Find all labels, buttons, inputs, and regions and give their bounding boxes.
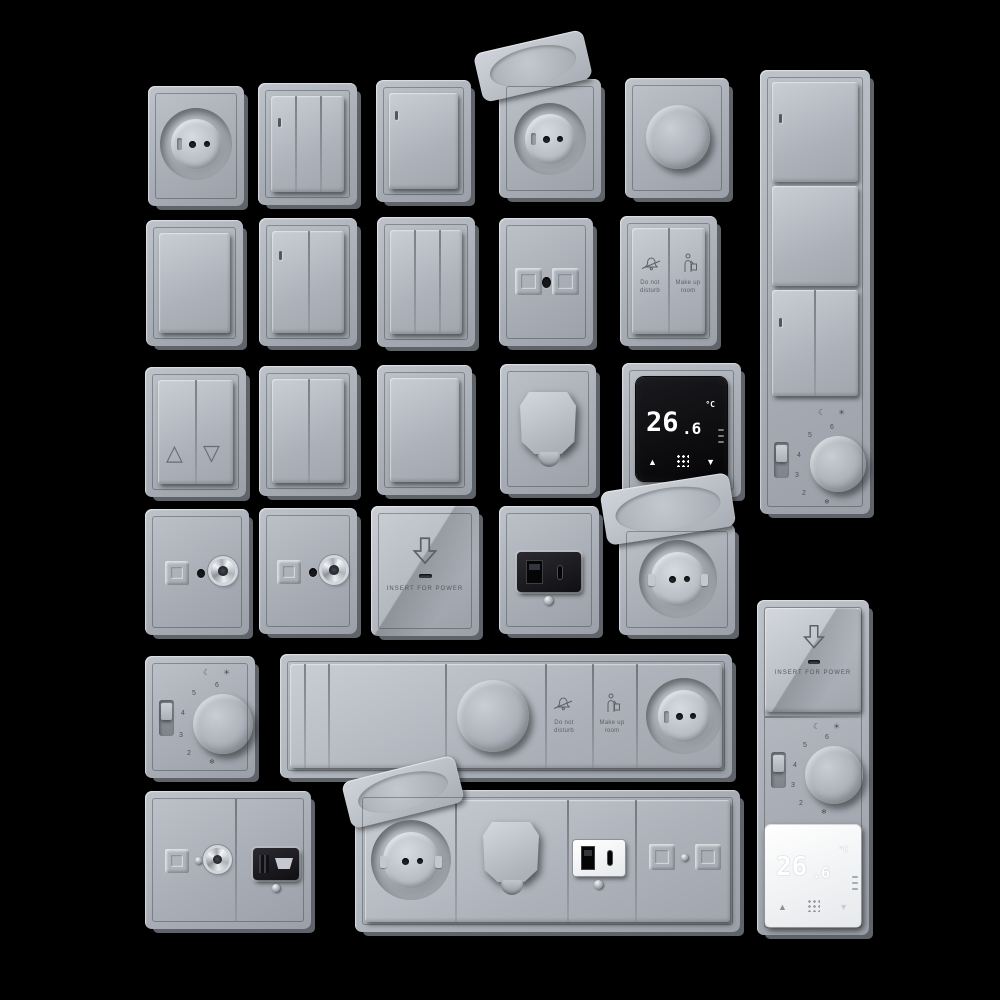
vent-slots: [259, 855, 269, 873]
insert-for-power-label: INSERT FOR POWER: [769, 670, 857, 676]
dial-number: 4: [793, 762, 797, 769]
thermostat-dial[interactable]: [810, 436, 866, 492]
hotel-service-plate: Do not disturb Make up room: [620, 216, 717, 346]
socket-pin-hole: [204, 141, 210, 147]
shutter-switch-plate: △ ▽: [145, 367, 246, 497]
dial-number: 5: [808, 432, 812, 439]
key-card-switch-plate[interactable]: INSERT FOR POWER: [371, 506, 479, 636]
side-indicators: [718, 429, 724, 443]
strip-rocker-3[interactable]: [772, 290, 858, 396]
coax-connector[interactable]: [206, 848, 229, 871]
do-not-disturb-icon: [552, 694, 574, 712]
socket-face: [651, 552, 705, 606]
strip-divider: [328, 664, 330, 768]
module-emboss[interactable]: [649, 844, 675, 870]
shutter-down-icon: ▽: [203, 440, 220, 466]
dial-number: 4: [181, 710, 185, 717]
module-emboss[interactable]: [695, 844, 721, 870]
thermostat-screen[interactable]: °C 26 .6 ▲ ▼: [636, 377, 727, 481]
usb-c-port[interactable]: [557, 565, 563, 580]
center-hole: [197, 569, 205, 578]
covered-socket-plate: [499, 79, 601, 198]
socket-well[interactable]: [514, 103, 586, 175]
thermostat-dial[interactable]: [805, 746, 863, 804]
tv-emboss: [277, 560, 301, 584]
earth-clip: [435, 856, 442, 868]
combination-strip: Do not disturb Make up room: [280, 654, 732, 778]
blank-rocker[interactable]: [159, 233, 230, 333]
cable-outlet-spout: [538, 452, 560, 467]
usb-white-module: [573, 840, 625, 876]
switch-3gang-rocker[interactable]: [390, 230, 462, 334]
strip-divider: [592, 664, 594, 768]
indicator-tick: [779, 114, 782, 123]
cover-pad: [612, 480, 723, 538]
socket-pin-hole: [684, 576, 690, 582]
dial-number: 2: [187, 750, 191, 757]
temperature-frac: .6: [812, 866, 830, 881]
coax-connector[interactable]: [211, 559, 235, 583]
day-mode-icon: ☀: [833, 722, 840, 731]
dial-number: 3: [795, 472, 799, 479]
rocker-divider: [195, 380, 197, 484]
hdmi-module: [253, 848, 299, 880]
unit-label: °C: [838, 846, 848, 854]
dial-number: 6: [825, 734, 829, 741]
rocker-divider: [295, 96, 297, 192]
socket-keyway: [664, 711, 669, 723]
socket-face: [383, 832, 439, 888]
dimmer-plate: [625, 78, 729, 198]
dial-number: 3: [179, 732, 183, 739]
rocker-divider: [308, 379, 310, 483]
menu-grid-icon[interactable]: [675, 453, 689, 467]
module-emboss[interactable]: [552, 268, 579, 295]
dimmer-knob[interactable]: [457, 680, 529, 752]
dial-number: 2: [799, 800, 803, 807]
socket-keyway: [531, 133, 536, 145]
temp-up-button[interactable]: ▲: [648, 457, 657, 467]
usb-a-port[interactable]: [526, 560, 543, 584]
screw: [681, 854, 688, 861]
indicator-tick: [279, 251, 282, 260]
coax-connector[interactable]: [322, 558, 346, 582]
switch-3gang-plate: [377, 217, 475, 347]
frost-icon: ❄: [821, 808, 827, 816]
hotel-service-rocker[interactable]: Do not disturb Make up room: [632, 228, 705, 334]
do-not-disturb-label: Do not disturb: [632, 280, 668, 296]
shutter-up-icon: △: [166, 440, 183, 466]
socket-pin-hole: [669, 576, 676, 583]
cover-pad: [486, 38, 580, 95]
socket-well[interactable]: [160, 108, 232, 180]
strip-divider: [635, 800, 637, 922]
frost-icon: ❄: [824, 498, 830, 506]
vertical-combination-strip: INSERT FOR POWER ☾ ☀ 6 5 4 3 2 ❄ °C 26 .…: [757, 600, 869, 935]
usb-c-port[interactable]: [607, 850, 613, 866]
make-up-room-icon: [602, 692, 622, 714]
socket-well[interactable]: [371, 820, 451, 900]
tv-hdmi-combination-plate: [145, 791, 311, 929]
socket-pin-hole: [690, 713, 696, 719]
rocker-divider: [320, 96, 322, 192]
do-not-disturb-label: Do not disturb: [545, 720, 583, 736]
cable-outlet-hood: [483, 822, 539, 882]
strip-divider: [445, 664, 447, 768]
usb-a-port[interactable]: [581, 846, 595, 870]
indicator-tick: [395, 111, 398, 120]
socket-pin-hole: [189, 141, 196, 148]
switch-1gang-rocker[interactable]: [390, 378, 459, 482]
hdmi-port[interactable]: [275, 858, 293, 869]
render-stage: ☾ ☀ 6 5 4 3 2 ❄: [0, 0, 1000, 1000]
night-mode-icon: ☾: [203, 668, 210, 677]
switch-1gang-plate: [376, 80, 471, 202]
night-mode-icon: ☾: [818, 408, 825, 417]
vertical-switch-strip: ☾ ☀ 6 5 4 3 2 ❄: [760, 70, 870, 514]
make-up-room-label: Make up room: [670, 280, 706, 296]
earth-clip: [648, 574, 655, 586]
temp-up-button[interactable]: ▲: [778, 902, 787, 912]
tv-sat-socket-plate: [145, 509, 249, 635]
rocker-divider: [414, 230, 416, 334]
covered-socket-plate: [619, 524, 735, 635]
indicator-tick: [278, 118, 281, 127]
strip-divider: [765, 716, 861, 718]
make-up-room-label: Make up room: [593, 720, 631, 736]
temperature-main: 26: [646, 409, 679, 436]
strip-divider: [304, 664, 306, 768]
module-emboss[interactable]: [515, 268, 542, 295]
side-indicators: [852, 876, 858, 890]
dial-number: 6: [215, 682, 219, 689]
rocker-divider: [308, 231, 310, 333]
earth-clip: [380, 856, 387, 868]
thermostat-slider[interactable]: [771, 752, 786, 788]
socket-pin-hole: [417, 858, 423, 864]
dial-number: 6: [830, 424, 834, 431]
dial-number: 4: [797, 452, 801, 459]
socket-keyway: [177, 138, 182, 150]
strip-divider: [636, 664, 638, 768]
tv-emboss: [165, 561, 189, 585]
cable-outlet-plate: [500, 364, 596, 494]
dial-number: 3: [791, 782, 795, 789]
thermostat-slider[interactable]: [774, 442, 789, 478]
switch-3gang-plate: [258, 83, 357, 205]
rocker-divider: [439, 230, 441, 334]
combination-strip: [355, 790, 740, 932]
screw: [195, 857, 202, 864]
switch-2gang-plate: [259, 366, 357, 496]
card-led-slot: [808, 660, 820, 664]
round-socket-plate: [148, 86, 244, 206]
socket-pin-hole: [402, 858, 409, 865]
tv-sat-socket-plate: [259, 508, 357, 634]
screw: [594, 880, 603, 889]
rotary-thermostat-plate: ☾ ☀ 6 5 4 3 2 ❄: [145, 656, 255, 778]
menu-grid-icon[interactable]: [806, 898, 820, 912]
switch-1gang-plate: [377, 365, 472, 495]
rocker-divider: [814, 290, 816, 396]
strip-divider: [545, 664, 547, 768]
frost-icon: ❄: [209, 758, 215, 766]
temp-down-button[interactable]: ▼: [706, 457, 715, 467]
socket-pin-hole: [557, 136, 563, 142]
strip-divider: [567, 800, 569, 922]
socket-pin-hole: [543, 136, 550, 143]
switch-1gang-rocker[interactable]: [389, 93, 458, 189]
socket-pin-hole: [676, 713, 683, 720]
switch-2gang-plate: [259, 218, 357, 346]
temperature-frac: .6: [682, 421, 701, 437]
center-hole: [309, 568, 317, 577]
socket-flip-cover[interactable]: [473, 29, 593, 103]
insert-arrow-icon: [799, 622, 829, 652]
center-hole: [542, 277, 551, 288]
strip-rocker-2[interactable]: [772, 186, 858, 286]
strip-rocker-1[interactable]: [772, 82, 858, 182]
plate-divider: [235, 799, 237, 921]
thermostat-slider[interactable]: [159, 700, 174, 736]
unit-label: °C: [705, 401, 715, 409]
digital-thermostat-white[interactable]: °C 26 .6 ▲ ▼: [764, 824, 862, 928]
switch-3gang-rocker[interactable]: [271, 96, 344, 192]
insert-for-power-label: INSERT FOR POWER: [381, 586, 469, 592]
blank-switch-plate: [146, 220, 243, 346]
switch-2gang-rocker[interactable]: [272, 379, 344, 483]
temp-down-button[interactable]: ▼: [839, 902, 848, 912]
make-up-room-icon: [679, 252, 699, 274]
do-not-disturb-icon: [640, 254, 662, 272]
twin-module-plate: [499, 218, 593, 346]
earth-clip: [701, 574, 708, 586]
screw: [272, 884, 280, 892]
switch-2gang-rocker[interactable]: [272, 231, 344, 333]
day-mode-icon: ☀: [838, 408, 845, 417]
tv-emboss: [165, 849, 189, 873]
usb-charger-plate: [499, 506, 599, 634]
temperature-main: 26: [776, 854, 807, 880]
thermostat-dial[interactable]: [193, 694, 253, 754]
dial-number: 5: [803, 742, 807, 749]
night-mode-icon: ☾: [813, 722, 820, 731]
dial-number: 2: [802, 490, 806, 497]
usb-module: [517, 552, 581, 592]
card-fold-highlight: [371, 506, 479, 636]
card-led-slot: [419, 574, 432, 578]
socket-well[interactable]: [639, 540, 717, 618]
key-card-section[interactable]: INSERT FOR POWER: [765, 608, 861, 712]
socket-well[interactable]: [646, 678, 722, 754]
dimmer-knob[interactable]: [646, 105, 710, 169]
shutter-rocker[interactable]: △ ▽: [158, 380, 233, 484]
indicator-tick: [779, 318, 782, 327]
day-mode-icon: ☀: [223, 668, 230, 677]
cable-outlet-hood: [520, 392, 576, 454]
strip-divider: [455, 800, 457, 922]
insert-arrow-icon: [408, 534, 442, 568]
dial-number: 5: [192, 690, 196, 697]
socket-flip-cover[interactable]: [600, 472, 737, 546]
screw: [544, 596, 553, 605]
